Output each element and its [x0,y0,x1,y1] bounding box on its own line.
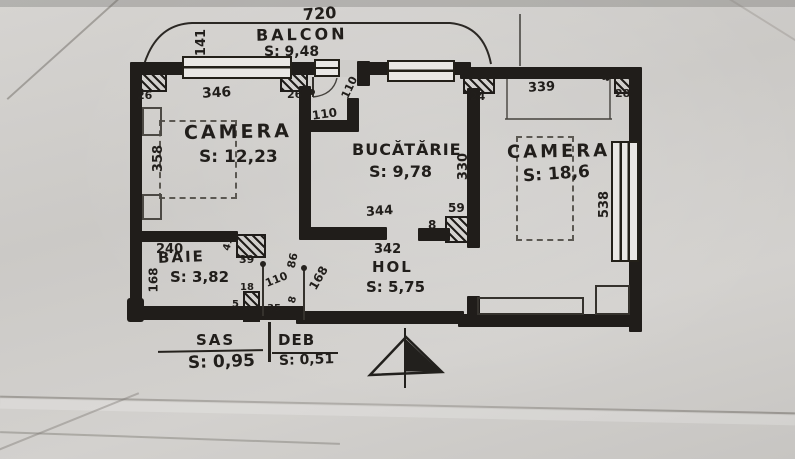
room-area-bucatarie: S: 9,78 [369,164,432,180]
balcony-door-swing [313,78,337,97]
paper-crease [699,0,795,50]
paper-crease [0,399,795,426]
dim-pier-59: 59 [448,202,465,214]
room-label-deb: DEB [278,333,315,348]
room-area-baie: S: 3,82 [170,270,229,285]
dim-corner-pier-side: 8 [602,74,613,83]
wall-bottom-east [458,314,642,327]
wall-bottom-center [296,311,464,324]
room-label-camera2: CAMERA [507,142,610,162]
camera1-radiator-top [142,107,162,136]
wall-kitchen-L-stub [347,98,359,126]
dim-sas-height: 168 [307,264,330,292]
photo-edge-shadow [0,0,795,7]
dim-hol-top: 342 [374,243,401,256]
pier-sas [243,291,260,322]
dim-pier-left: 26 [137,90,152,101]
corner-blob [127,298,144,322]
dim-pier-59-side: 8 [428,219,436,231]
door-pivot-dot [260,261,266,267]
room-label-balcon: BALCON [256,26,348,44]
door-pivot-dot [301,265,307,271]
window-small-center [314,59,340,77]
wall-baie-top [133,231,238,242]
room-area-camera2: S: 18,6 [522,164,590,186]
paper-crease [7,0,120,100]
dim-baie-height: 168 [148,267,160,292]
dim-balcony-window: 346 [202,85,232,101]
room-area-camera1: S: 12,23 [199,149,278,166]
sas-deb-divider [268,322,271,362]
room-label-sas: SAS [196,333,235,348]
window-538 [611,141,639,262]
window-kitchen-top [387,60,455,82]
room-area-balcon: S: 9,48 [264,45,319,59]
camera2-sofa [477,297,584,315]
sas-door-leaf [262,266,264,316]
dim-camera2-top: 339 [528,80,556,94]
dim-total-width: 720 [302,5,336,23]
room-area-sas: S: 0,95 [188,353,255,372]
room-label-camera1: CAMERA [184,122,292,143]
dim-baie-top: 240 [156,243,183,256]
dim-18: 18 [240,283,254,293]
dim-35: 35 [267,304,281,314]
pier-59 [445,216,476,243]
dim-sas-door: 110 [264,270,289,289]
dim-balcony-door: 110 [340,75,360,100]
camera2-side-table [595,285,630,315]
dim-5: 5 [232,300,239,310]
north-arrow-icon [370,328,442,388]
paper-crease [0,431,340,445]
camera1-radiator-bottom [142,194,162,220]
room-label-hol: HOL [372,260,413,275]
dim-kitchen-entry: 110 [311,106,337,121]
dim-baie-door-side: 41 [222,236,235,252]
dim-balcony-depth: 141 [195,29,208,56]
dim-bracket-339 [505,76,612,119]
dim-baie-door-pier: 39 [239,254,254,265]
room-area-hol: S: 5,75 [366,280,425,295]
sas-door-leaf [303,270,305,320]
dim-camera1-height: 358 [152,145,165,172]
paper-crease [0,392,139,458]
dim-pier-24: 24 [470,91,485,102]
dim-bucatarie-height: 330 [457,153,470,180]
dim-corner-pier: 28 [615,88,630,99]
wall-bucatarie-hol-a [299,227,387,240]
dim-right-window: 538 [598,191,611,218]
paper-crease [0,396,795,415]
dim-8: 8 [288,295,299,304]
dim-bucatarie-bottom: 344 [366,204,394,219]
room-area-deb: S: 0,51 [279,352,335,368]
room-label-bucatarie: BUCĂTĂRIE [352,142,462,158]
dim-pier-mid: 26 [287,89,302,100]
wall-camera1-bucatarie [299,86,311,234]
dim-86: 86 [286,252,300,269]
scanned-floor-plan: BALCON S: 9,48 CAMERA S: 12,23 BUCĂTĂRIE… [0,0,795,459]
